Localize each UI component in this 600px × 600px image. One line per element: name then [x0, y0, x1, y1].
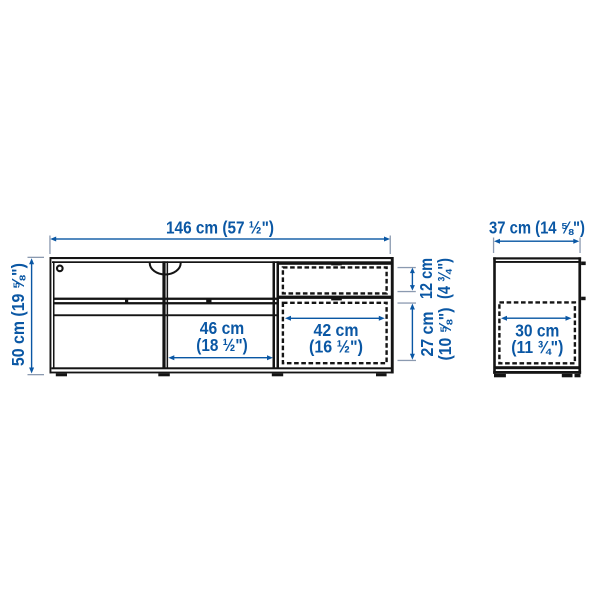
svg-text:(11 ¾"): (11 ¾"): [511, 337, 563, 357]
svg-text:(4 ¾"): (4 ¾"): [434, 258, 454, 299]
svg-text:(16 ½"): (16 ½"): [309, 337, 363, 357]
svg-text:50 cm (19 ⅝"): 50 cm (19 ⅝"): [8, 263, 28, 366]
svg-text:37 cm (14 ⅝"): 37 cm (14 ⅝"): [489, 217, 585, 237]
svg-text:146 cm (57 ½"): 146 cm (57 ½"): [166, 217, 274, 237]
svg-text:(10 ⅝"): (10 ⅝"): [435, 308, 455, 361]
svg-text:(18 ½"): (18 ½"): [196, 335, 247, 355]
